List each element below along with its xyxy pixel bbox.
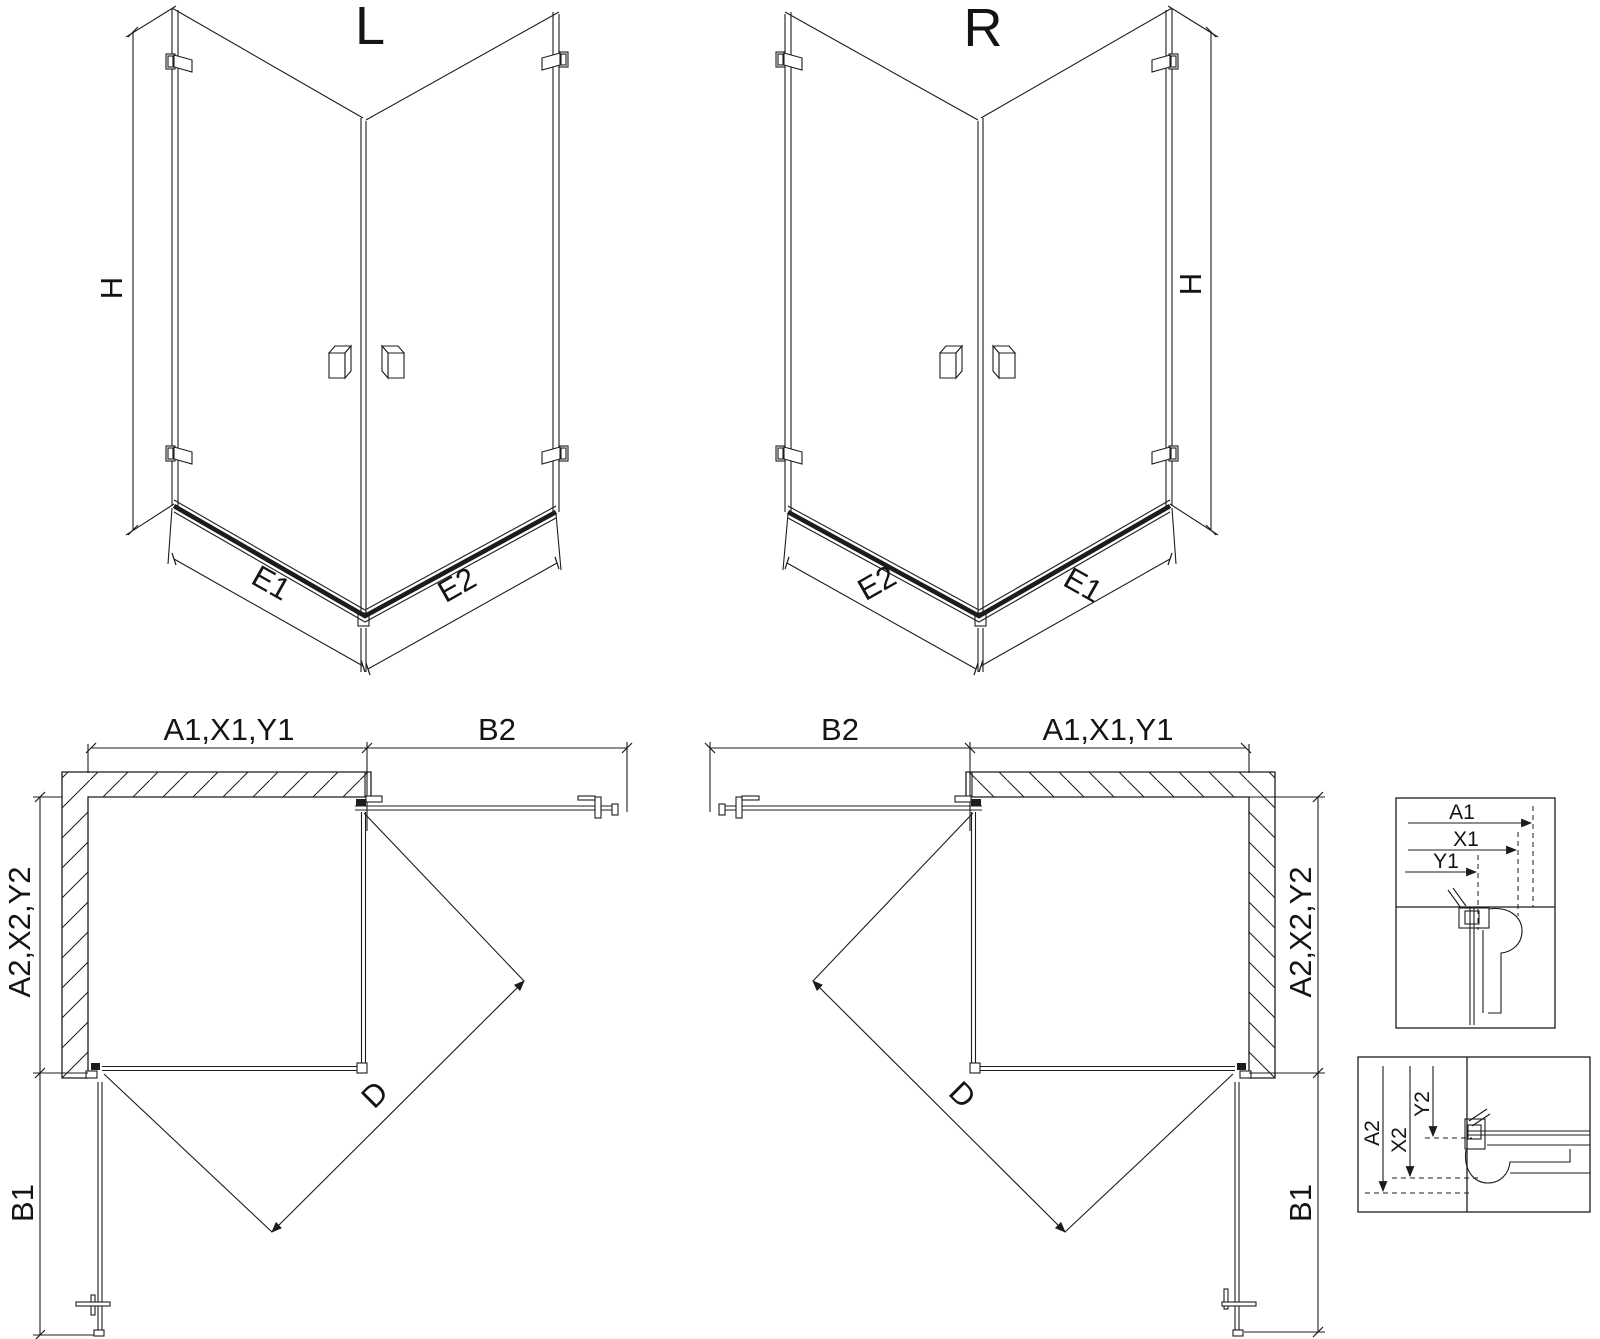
plan-view-left: A1,X1,Y1 B2 A2,X2,Y2 B1 D — [2, 712, 632, 1339]
iso-right-label: R — [964, 0, 1003, 58]
detail-box-top: A1 X1 Y1 — [1396, 798, 1555, 1028]
iso-right-height-dim-label: H — [1173, 273, 1208, 295]
plan-view-right: A1,X1,Y1 B2 A2,X2,Y2 B1 D — [705, 712, 1325, 1337]
plan-left-b1-label: B1 — [5, 1184, 40, 1222]
iso-right-e2-label: E2 — [852, 558, 902, 607]
iso-left-height-dim-label: H — [94, 277, 129, 299]
plan-left-door-handle — [76, 1295, 110, 1315]
plan-right-a2-label: A2,X2,Y2 — [1283, 867, 1318, 998]
detail-bottom-x2-label: X2 — [1388, 1127, 1411, 1153]
drawing-sheet: L H E1 E2 R H E2 E1 A1,X1,Y1 B2 A2,X2,Y2 — [0, 0, 1600, 1339]
plan-left-d-label: D — [354, 1074, 395, 1115]
technical-drawing: L H E1 E2 R H E2 E1 A1,X1,Y1 B2 A2,X2,Y2 — [0, 0, 1600, 1339]
iso-view-right: R H E2 E1 — [776, 0, 1218, 675]
iso-right-geometry — [776, 6, 1218, 675]
plan-right-geometry — [705, 742, 1275, 1336]
plan-left-a2-label: A2,X2,Y2 — [2, 867, 37, 998]
detail-bottom-profile — [1465, 1109, 1590, 1183]
detail-top-a1-label: A1 — [1449, 801, 1475, 824]
detail-top-y1-label: Y1 — [1433, 850, 1459, 873]
detail-bottom-a2-label: A2 — [1361, 1120, 1384, 1146]
plan-right-d-label: D — [942, 1074, 983, 1115]
detail-box-bottom: A2 X2 Y2 — [1358, 1057, 1590, 1212]
iso-left-label: L — [355, 0, 385, 56]
iso-left-e2-label: E2 — [432, 560, 482, 609]
plan-right-b1-label: B1 — [1283, 1184, 1318, 1222]
plan-left-b2-label: B2 — [478, 712, 516, 747]
iso-view-left: L H E1 E2 — [94, 0, 568, 675]
plan-left-a1-label: A1,X1,Y1 — [164, 712, 295, 747]
plan-left-geometry — [62, 742, 632, 1336]
plan-right-b2-label: B2 — [821, 712, 859, 747]
detail-bottom-y2-label: Y2 — [1411, 1091, 1434, 1117]
iso-left-geometry — [126, 6, 568, 675]
detail-top-profile — [1448, 888, 1522, 1025]
detail-top-x1-label: X1 — [1453, 828, 1479, 851]
plan-right-a1-label: A1,X1,Y1 — [1043, 712, 1174, 747]
